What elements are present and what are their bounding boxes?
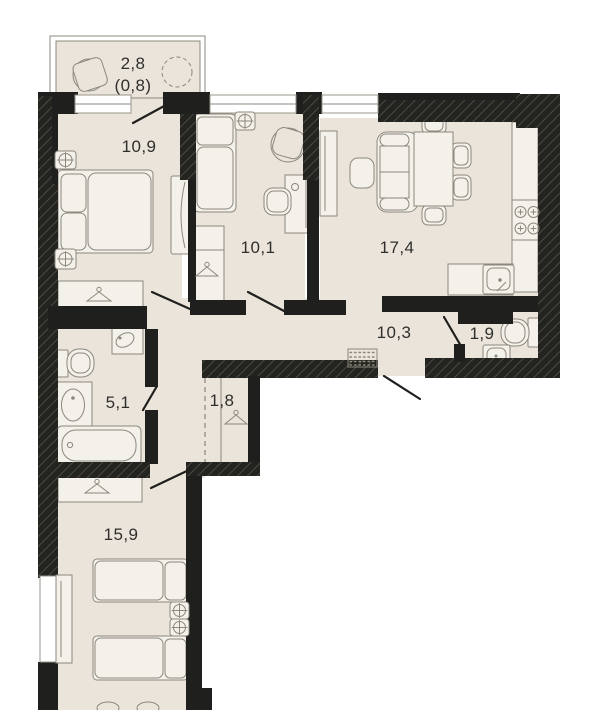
wall: [186, 476, 202, 710]
wall: [454, 344, 465, 362]
pillow-icon: [197, 117, 233, 145]
floor-plan-drawing: 2,8 (0,8) 10,9 10,1 17,4 10,3 1,9 5,1 1,…: [0, 0, 600, 710]
radiator-symbol: [55, 249, 76, 269]
mattress-icon: [95, 561, 163, 600]
mattress-icon: [197, 147, 233, 209]
wc-area-label: 1,9: [470, 324, 495, 343]
tall-cabinet-icon: [320, 131, 337, 216]
dining-table-icon: [414, 132, 453, 206]
balcony-area-label: 2,8: [121, 54, 146, 73]
floor-balcony-door-gap: [131, 93, 163, 114]
pillow-icon: [61, 213, 86, 250]
sink-drain: [119, 337, 122, 340]
mattress-icon: [95, 638, 163, 678]
side-table-icon: [350, 158, 374, 188]
entrance-door-swing: [384, 376, 420, 399]
wall-hatched: [303, 95, 319, 180]
wall: [145, 329, 158, 387]
floor-closet: [202, 376, 248, 464]
kitchen-area-label: 17,4: [380, 238, 415, 257]
pillow-icon: [165, 562, 186, 600]
wall: [145, 410, 158, 464]
sink-drain: [498, 278, 502, 282]
wardrobe-icon: [58, 474, 142, 502]
floor-plan: 2,8 (0,8) 10,9 10,1 17,4 10,3 1,9 5,1 1,…: [0, 0, 600, 710]
sofa-armrest: [380, 198, 409, 210]
sofa-armrest: [380, 134, 409, 146]
pillow-icon: [61, 174, 86, 212]
toilet-tank: [57, 350, 68, 377]
room-2-area-label: 10,1: [241, 238, 276, 257]
wall-hatched: [186, 462, 260, 476]
wall-hatched: [425, 358, 560, 378]
balcony-reduced-area-label: (0,8): [115, 76, 152, 95]
wardrobe-icon: [58, 281, 143, 310]
wall: [284, 300, 346, 315]
desk-chair-icon: [264, 188, 291, 215]
wall-hatched: [180, 114, 196, 180]
floor-entrance-threshold: [378, 360, 425, 376]
wall: [52, 96, 58, 184]
wall: [48, 306, 147, 329]
mattress-icon: [88, 173, 151, 250]
sink-drain: [495, 355, 498, 358]
radiator-symbol: [170, 619, 189, 636]
hallway-area-label: 10,3: [377, 323, 412, 342]
wall: [307, 180, 319, 302]
wall: [163, 92, 210, 114]
closet-area-label: 1,8: [210, 391, 235, 410]
bathroom-area-label: 5,1: [106, 393, 131, 412]
wall: [188, 180, 196, 302]
wall: [190, 300, 246, 315]
radiator-symbol: [55, 151, 76, 169]
wall: [38, 662, 58, 710]
wall-hatched: [538, 100, 560, 378]
sink-drain: [71, 396, 75, 400]
wall: [458, 312, 513, 324]
pillow-icon: [165, 639, 186, 678]
wall-hatched: [202, 360, 378, 378]
wall: [248, 376, 260, 464]
radiator-symbol: [170, 602, 189, 619]
window: [40, 576, 58, 662]
wall: [198, 688, 212, 710]
wall-hatched: [38, 462, 150, 478]
radiator-symbol: [235, 112, 255, 130]
wardrobe-icon: [193, 226, 224, 308]
window-sill: [56, 575, 72, 663]
bedroom-1-area-label: 10,9: [122, 137, 157, 156]
bedroom-2-area-label: 15,9: [104, 525, 139, 544]
wall: [382, 296, 538, 312]
